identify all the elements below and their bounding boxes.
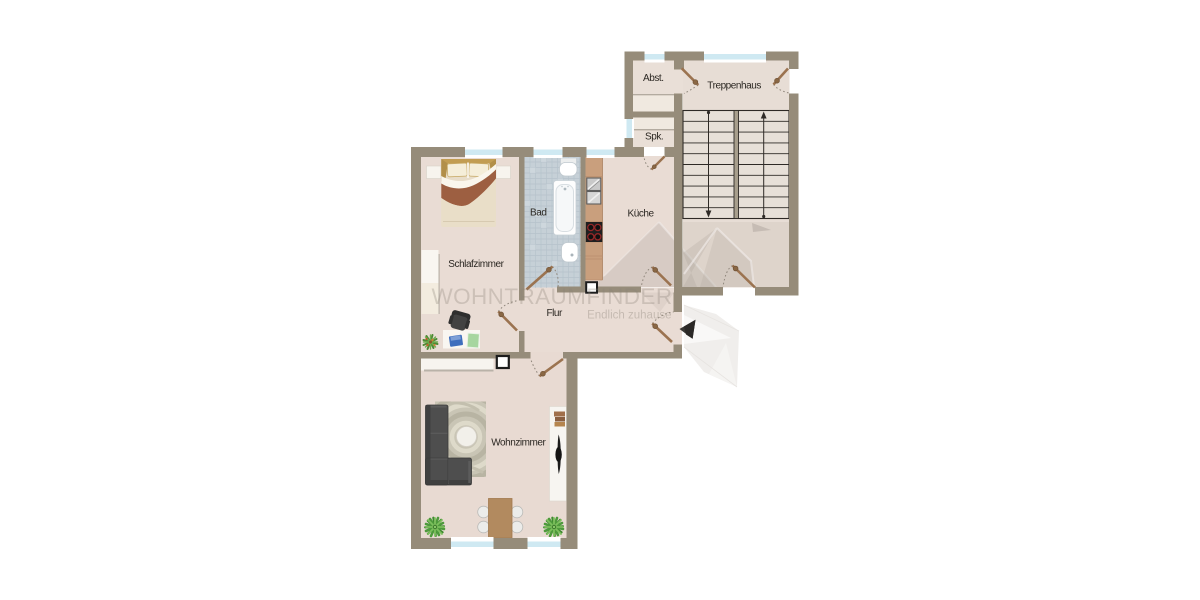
svg-text:Wohnzimmer: Wohnzimmer — [491, 438, 546, 449]
svg-text:Treppenhaus: Treppenhaus — [707, 81, 761, 92]
svg-text:WOHNTRAUMFINDER: WOHNTRAUMFINDER — [432, 284, 673, 309]
svg-text:Spk.: Spk. — [645, 132, 663, 143]
svg-text:Endlich zuhause: Endlich zuhause — [587, 310, 671, 322]
svg-text:Küche: Küche — [628, 209, 655, 220]
svg-text:Abst.: Abst. — [643, 73, 664, 84]
svg-text:Bad: Bad — [530, 208, 546, 219]
svg-text:Flur: Flur — [547, 308, 564, 319]
svg-text:Schlafzimmer: Schlafzimmer — [448, 259, 504, 270]
